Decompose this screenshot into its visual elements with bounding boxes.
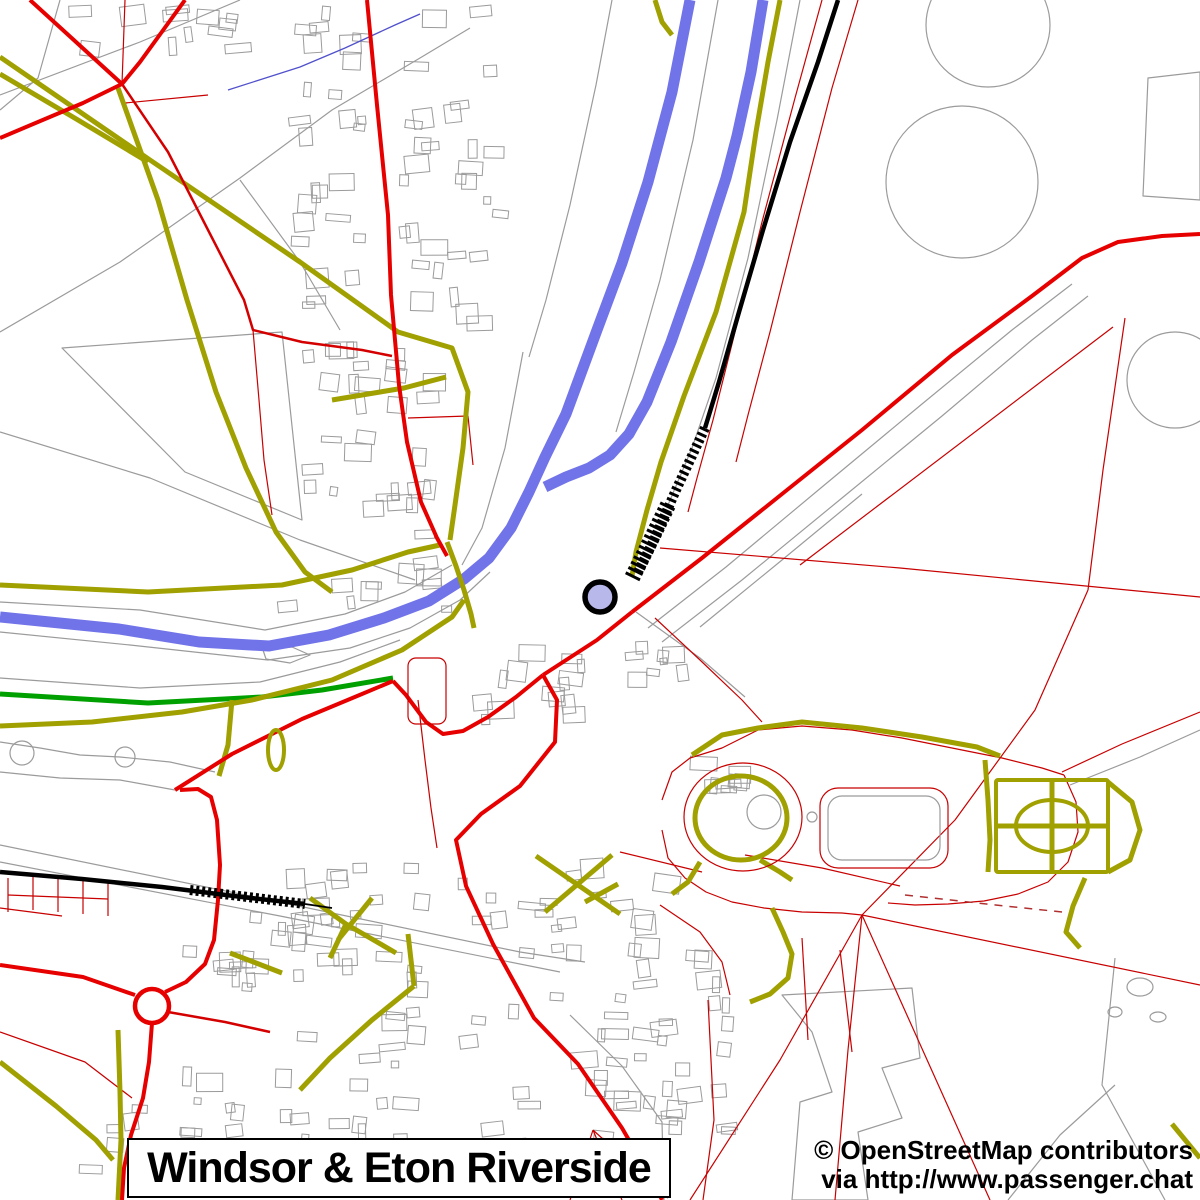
building-outline	[277, 600, 297, 613]
building-outline	[184, 27, 193, 43]
major-road	[393, 675, 543, 734]
building-outline	[615, 994, 626, 1003]
building-outline	[486, 893, 496, 903]
river	[545, 0, 763, 487]
minor-road	[620, 852, 702, 872]
building-outline	[690, 756, 718, 771]
building-outline	[459, 1034, 479, 1049]
footpath	[1108, 782, 1140, 872]
building-outline	[634, 937, 660, 958]
building-outline	[355, 396, 367, 414]
building-outline	[340, 35, 362, 55]
minor-road	[703, 1000, 714, 1200]
building-outline	[506, 660, 528, 682]
minor-road	[0, 908, 62, 916]
building-outline	[557, 917, 576, 930]
building-outline	[182, 1067, 191, 1086]
building-outline	[319, 372, 340, 392]
tree-ring	[886, 106, 1038, 258]
major-road	[456, 675, 662, 1200]
footpath	[219, 700, 232, 776]
boundary-line	[662, 296, 1088, 642]
pond	[1108, 1007, 1122, 1017]
footpath	[0, 57, 468, 540]
building-outline	[551, 944, 563, 953]
building-outline	[168, 37, 177, 55]
major-road	[175, 681, 393, 790]
major-road	[632, 234, 1200, 612]
minor-road	[1088, 318, 1125, 590]
building-outline	[518, 1101, 541, 1109]
building-outline	[646, 668, 659, 676]
building-outline	[194, 1098, 201, 1105]
pond	[1150, 1012, 1166, 1022]
footpath	[0, 545, 440, 592]
building-outline	[183, 946, 197, 958]
building-outline	[650, 1019, 678, 1037]
building-outline	[361, 582, 378, 601]
building-outline	[332, 578, 353, 593]
building-outline	[422, 10, 446, 28]
building-outline	[353, 863, 367, 873]
building-outline	[694, 950, 712, 969]
map-root: Windsor & Eton Riverside © OpenStreetMap…	[0, 0, 1200, 1200]
building-outline	[398, 563, 424, 584]
building-outline	[304, 480, 316, 493]
building-outline	[79, 1165, 102, 1174]
fence-dash	[905, 895, 1062, 912]
building-outline	[472, 694, 492, 711]
building-outline	[303, 302, 315, 309]
boundary-line	[0, 772, 175, 790]
building-outline	[410, 292, 433, 312]
building-outline	[225, 1124, 243, 1138]
building-outline	[366, 582, 382, 590]
minor-road	[0, 1032, 132, 1098]
round-tower	[747, 795, 781, 829]
building-outline	[711, 1084, 726, 1098]
building-outline	[393, 1097, 420, 1111]
footpath	[1066, 878, 1085, 948]
mid-road	[168, 1012, 270, 1032]
railway	[0, 872, 305, 904]
building-outline	[455, 174, 466, 185]
boundary-line	[616, 0, 718, 432]
building-outline	[354, 234, 366, 243]
building-outline	[379, 1042, 405, 1052]
minor-road	[802, 938, 808, 1040]
building-outline	[468, 140, 477, 159]
building-outline	[471, 1016, 485, 1026]
building-outline	[69, 5, 92, 17]
minor-road	[125, 95, 208, 103]
building-outline	[470, 5, 492, 18]
building-outline	[577, 659, 585, 672]
quadrangle-wall	[820, 788, 948, 868]
building-outline	[444, 103, 462, 123]
building-outline	[363, 500, 384, 517]
attribution-line1: © OpenStreetMap contributors	[814, 1136, 1193, 1165]
building-outline	[247, 973, 256, 987]
minor-road	[800, 327, 1113, 565]
building-outline	[490, 911, 507, 929]
building-outline	[625, 651, 643, 660]
building-outline	[686, 950, 709, 962]
building-outline	[404, 61, 429, 71]
building-outline	[717, 1042, 732, 1058]
building-outline	[305, 882, 326, 899]
building-outline	[636, 641, 648, 654]
building-outline	[391, 483, 399, 500]
building-outline	[722, 998, 730, 1013]
building-outline	[275, 1069, 291, 1088]
building-outline	[225, 43, 252, 54]
building-outline	[350, 1079, 368, 1091]
building-outline	[219, 18, 237, 31]
footpath	[408, 934, 414, 986]
building-outline	[321, 436, 341, 443]
building-outline	[303, 34, 322, 54]
building-outline	[197, 1073, 223, 1091]
bandstand-path	[268, 730, 284, 770]
well	[807, 812, 817, 822]
railway	[705, 0, 838, 428]
roundabout	[135, 989, 169, 1023]
building-outline	[413, 893, 430, 910]
building-outline	[628, 672, 647, 687]
station-title: Windsor & Eton Riverside	[147, 1144, 651, 1192]
boundary-line	[700, 494, 862, 627]
building-outline	[213, 959, 234, 971]
building-outline	[663, 646, 685, 663]
building-outline	[292, 932, 306, 951]
building-outline	[712, 977, 719, 993]
building-outline	[469, 251, 488, 262]
building-outline	[299, 127, 313, 146]
tree-ring	[1127, 332, 1200, 428]
carpark-outline	[408, 658, 446, 724]
building-outline	[294, 970, 304, 982]
footpath	[118, 1030, 121, 1200]
attribution: © OpenStreetMap contributors via http://…	[814, 1136, 1193, 1194]
building-outline	[721, 1016, 733, 1031]
boundary-line	[1143, 72, 1200, 200]
castle-moat-wall	[684, 763, 802, 871]
building-outline	[492, 209, 508, 218]
building-outline	[303, 350, 315, 363]
building-outline	[412, 260, 430, 270]
building-outline	[631, 909, 654, 931]
building-outline	[604, 1012, 627, 1019]
minor-road	[862, 915, 1200, 985]
minor-road	[122, 0, 125, 84]
footpath	[0, 1062, 113, 1160]
building-outline	[551, 925, 561, 933]
building-outline	[329, 173, 354, 190]
footpath	[750, 908, 792, 1002]
building-outline	[356, 430, 376, 445]
building-outline	[508, 1004, 519, 1019]
building-outline	[290, 1113, 309, 1125]
building-outline	[412, 108, 434, 130]
building-outline	[421, 240, 448, 255]
building-outline	[386, 1011, 405, 1020]
building-outline	[288, 115, 310, 126]
major-road	[30, 0, 122, 84]
building-outline	[406, 1007, 420, 1018]
building-outline	[433, 262, 443, 279]
footpath	[692, 722, 1000, 756]
building-outline	[616, 1101, 636, 1109]
building-outline	[328, 90, 341, 100]
building-outline	[358, 1124, 366, 1139]
building-outline	[347, 596, 355, 609]
building-outline	[519, 645, 546, 662]
building-outline	[180, 1127, 202, 1136]
building-outline	[677, 1086, 702, 1104]
building-outline	[329, 1118, 349, 1128]
map-canvas	[0, 0, 1200, 1200]
footpath	[760, 860, 792, 880]
tree-ring	[926, 0, 1050, 87]
building-outline	[484, 197, 491, 205]
building-outline	[484, 146, 504, 158]
building-outline	[558, 671, 584, 687]
minor-road	[660, 548, 1200, 597]
building-outline	[302, 464, 323, 476]
building-outline	[399, 175, 408, 186]
building-outline	[550, 993, 563, 1001]
building-outline	[632, 1027, 659, 1042]
building-outline	[412, 448, 426, 466]
building-outline	[342, 959, 352, 975]
building-outline	[208, 26, 233, 38]
building-outline	[317, 953, 339, 966]
building-outline	[415, 530, 435, 539]
building-outline	[353, 361, 368, 370]
building-outline	[344, 443, 371, 461]
major-road	[0, 965, 135, 995]
station-marker	[585, 582, 615, 612]
minor-road	[840, 950, 852, 1052]
building-outline	[662, 1081, 672, 1097]
building-outline	[481, 1121, 504, 1137]
building-outline	[297, 1032, 317, 1042]
building-outline	[352, 1116, 367, 1134]
building-outline	[326, 214, 351, 223]
building-outline	[399, 226, 411, 238]
building-outline	[633, 979, 657, 989]
building-outline	[407, 1025, 426, 1044]
building-outline	[376, 951, 402, 962]
building-outline	[278, 922, 285, 935]
building-outline	[636, 959, 651, 978]
building-outline	[404, 154, 430, 174]
building-outline	[708, 996, 720, 1011]
building-outline	[606, 1057, 627, 1067]
building-outline	[594, 1071, 607, 1086]
building-outline	[391, 1061, 398, 1068]
minor-road	[1062, 712, 1200, 772]
building-outline	[676, 1063, 690, 1076]
pond	[1127, 978, 1153, 996]
building-outline	[669, 1121, 682, 1135]
building-outline	[513, 1086, 530, 1099]
building-outline	[345, 270, 360, 286]
moat-garden-path	[695, 776, 787, 860]
building-outline	[563, 706, 585, 723]
major-road	[543, 612, 632, 675]
building-outline	[306, 935, 332, 947]
footpath	[632, 0, 780, 576]
building-outline	[634, 1054, 646, 1061]
boundary-line	[0, 432, 415, 580]
building-outline	[417, 391, 440, 404]
building-outline	[291, 236, 309, 247]
fountain	[10, 741, 34, 765]
building-outline	[330, 870, 348, 889]
building-outline	[321, 6, 330, 20]
building-outline	[334, 949, 358, 966]
building-outline	[483, 65, 497, 77]
building-outline	[448, 251, 467, 260]
building-outline	[107, 1125, 120, 1133]
footpath	[118, 88, 332, 592]
footpath	[655, 0, 672, 35]
building-outline	[377, 1097, 388, 1109]
building-outline	[293, 212, 314, 233]
boundary-line	[529, 0, 612, 357]
river	[0, 0, 690, 646]
building-outline	[309, 22, 329, 33]
attribution-line2: via http://www.passenger.chat	[814, 1165, 1193, 1194]
building-outline	[119, 4, 146, 26]
stream	[228, 14, 420, 90]
building-outline	[566, 945, 581, 961]
major-road	[0, 0, 185, 138]
building-outline	[250, 912, 262, 924]
minor-road	[655, 618, 762, 722]
building-outline	[297, 194, 316, 214]
building-outline	[605, 1091, 629, 1099]
footpath	[985, 760, 990, 872]
footpath	[0, 74, 148, 162]
building-outline	[359, 1053, 380, 1064]
building-outline	[676, 664, 689, 681]
building-outline	[561, 694, 576, 714]
building-outline	[303, 82, 311, 97]
boundary-line	[648, 284, 1072, 628]
building-outline	[422, 479, 436, 500]
building-outline	[696, 970, 722, 990]
quadrangle	[828, 796, 940, 860]
station-title-box: Windsor & Eton Riverside	[127, 1138, 671, 1198]
building-outline	[286, 869, 305, 889]
building-outline	[404, 863, 419, 873]
footpath	[230, 953, 282, 973]
building-outline	[329, 487, 337, 497]
